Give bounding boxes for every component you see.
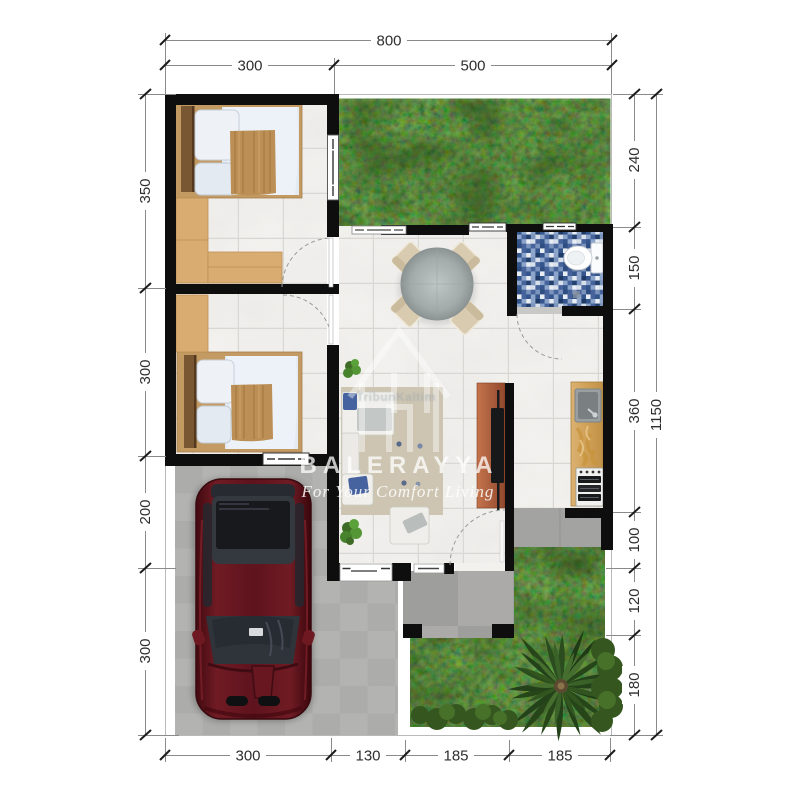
svg-text:BALERAYYA: BALERAYYA — [300, 452, 499, 479]
svg-text:800: 800 — [376, 33, 401, 50]
svg-text:300: 300 — [235, 748, 260, 765]
svg-text:130: 130 — [355, 748, 380, 765]
svg-text:300: 300 — [237, 58, 262, 75]
svg-text:200: 200 — [137, 499, 154, 524]
svg-text:185: 185 — [443, 748, 468, 765]
svg-text:TribunKaltim: TribunKaltim — [356, 390, 435, 404]
svg-text:185: 185 — [547, 748, 572, 765]
svg-text:300: 300 — [137, 638, 154, 663]
svg-text:120: 120 — [626, 588, 643, 613]
svg-text:350: 350 — [137, 178, 154, 203]
svg-text:150: 150 — [626, 255, 643, 280]
svg-text:For Your Comfort Living: For Your Comfort Living — [301, 482, 495, 501]
svg-text:180: 180 — [626, 672, 643, 697]
svg-text:100: 100 — [626, 527, 643, 552]
svg-text:360: 360 — [626, 398, 643, 423]
svg-text:240: 240 — [626, 147, 643, 172]
svg-text:500: 500 — [460, 58, 485, 75]
svg-text:300: 300 — [137, 359, 154, 384]
svg-text:1150: 1150 — [648, 399, 665, 431]
